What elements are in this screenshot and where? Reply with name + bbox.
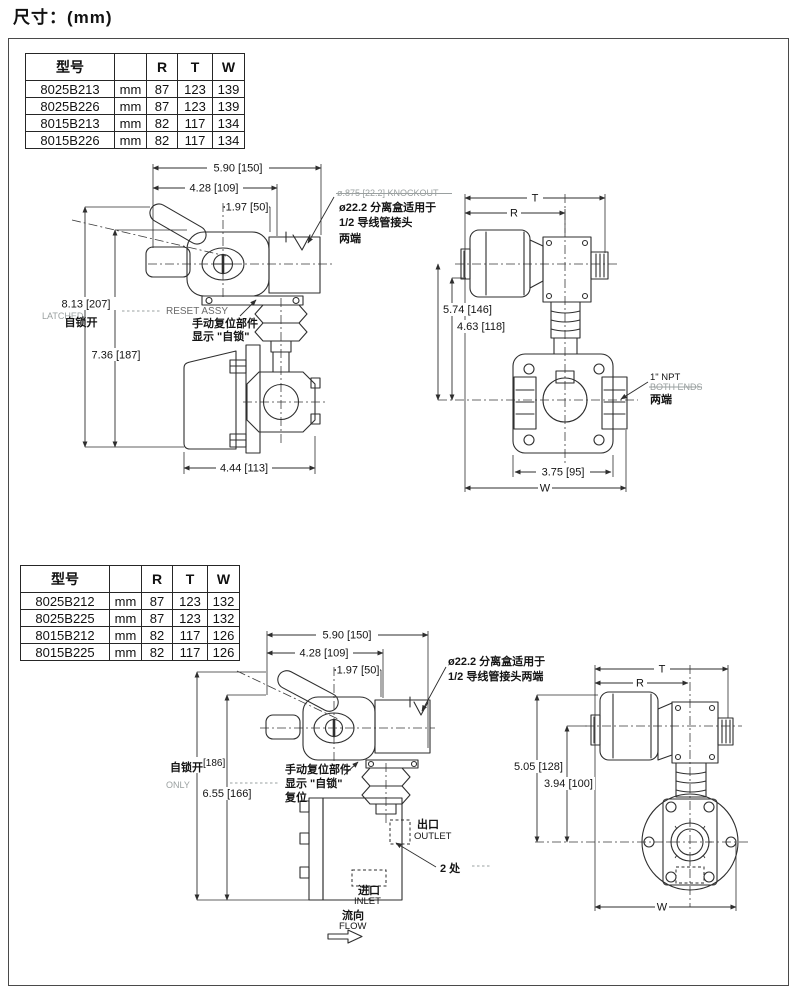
- bolt: [300, 833, 309, 844]
- end-cap: [591, 715, 600, 745]
- conduit-box: [375, 700, 430, 753]
- r-value: 82: [147, 132, 178, 149]
- dim-width-body: 4.28 [109]: [190, 183, 239, 195]
- r-value: 82: [147, 115, 178, 132]
- model-cell: 8025B213: [26, 81, 115, 98]
- latched-cn-label: 自锁开: [65, 315, 98, 329]
- dim-height-latched: [186]: [203, 758, 225, 769]
- dim-t: T: [532, 193, 539, 205]
- inlet-port: [352, 870, 386, 886]
- w-value: 139: [213, 81, 245, 98]
- bolt: [300, 867, 309, 878]
- table-row: 8025B226 mm 87 123 139: [26, 98, 245, 115]
- valve-side-outline: [438, 194, 638, 473]
- r-value: 87: [142, 593, 173, 610]
- r-header: R: [147, 54, 178, 81]
- model-cell: 8025B212: [21, 593, 110, 610]
- reset-cn-label-3: 复位: [284, 790, 307, 804]
- manual-handle: [275, 668, 342, 715]
- body-plate: [309, 798, 323, 900]
- model-header: 型号: [26, 54, 115, 81]
- unit-header: [115, 54, 147, 81]
- outlet-cn-label: 出口: [417, 817, 439, 831]
- dim-r: R: [636, 678, 644, 690]
- latched-cn-label: 自锁开: [170, 760, 203, 774]
- dim-height: 6.55 [166]: [203, 788, 252, 800]
- unit-cell: mm: [110, 593, 142, 610]
- w-value: 139: [213, 98, 245, 115]
- places-label: 2 处: [440, 861, 461, 875]
- knockout-cn-label-1: ø22.2 分离盒适用于: [448, 654, 545, 668]
- unit-cell: mm: [115, 132, 147, 149]
- labels: 5.90 [150] 4.28 [109] 1.97 [50] ø22.2 分离…: [166, 629, 545, 932]
- unit-cell: mm: [115, 115, 147, 132]
- page-title: 尺寸：(mm): [13, 3, 113, 28]
- extension-lines: [452, 194, 626, 492]
- t-header: T: [173, 566, 208, 593]
- labels: 5.90 [150] 4.28 [109] 1.97 [50] 8.13 [20…: [42, 162, 439, 475]
- body-plate: [246, 345, 260, 453]
- unit-cell: mm: [115, 98, 147, 115]
- npt-both-ends-label: BOTH ENDS: [650, 382, 703, 392]
- w-value: 134: [213, 115, 245, 132]
- dim-height-1: 5.05 [128]: [514, 761, 563, 773]
- manual-handle: [147, 201, 210, 248]
- dim-height-1: 5.74 [146]: [443, 304, 492, 316]
- solenoid-coil: [470, 230, 530, 297]
- spec-table-top: 型号 R T W 8025B213 mm 87 123 139 8025B226…: [25, 53, 245, 149]
- labels: T R 5.05 [128] 3.94 [100] W: [512, 663, 670, 914]
- w-header: W: [208, 566, 240, 593]
- reset-assy-en-label: RESET ASSY: [166, 306, 228, 317]
- r-value: 87: [147, 81, 178, 98]
- top-drawing: 5.90 [150] 4.28 [109] 1.97 [50] 8.13 [20…: [40, 148, 760, 538]
- enclosure-box: [184, 351, 236, 449]
- reset-cn-label-1: 手动复位部件: [285, 762, 351, 776]
- inlet-cn-label: 进口: [358, 883, 380, 897]
- bottom-right-view: T R 5.05 [128] 3.94 [100] W: [512, 663, 748, 914]
- table-row: 8015B213 mm 82 117 134: [26, 115, 245, 132]
- knockout-en-label: ø.875 [22.2] KNOCKOUT: [337, 188, 439, 198]
- mounting-flange: [513, 354, 613, 453]
- flow-en-label: FLOW: [339, 921, 366, 932]
- unit-header: [110, 566, 142, 593]
- dim-width-center: 1.97 [50]: [226, 202, 269, 214]
- model-cell: 8025B225: [21, 610, 110, 627]
- dim-height-latched: 8.13 [207]: [62, 299, 111, 311]
- model-cell: 8015B213: [26, 115, 115, 132]
- top-left-view: 5.90 [150] 4.28 [109] 1.97 [50] 8.13 [20…: [42, 162, 452, 475]
- table-row: 8025B213 mm 87 123 139: [26, 81, 245, 98]
- unit-cell: mm: [115, 81, 147, 98]
- top-right-view: T R 5.74 [146] 4.63 [118] 1" NPT BOTH EN…: [438, 192, 703, 495]
- model-cell: 8025B226: [26, 98, 115, 115]
- knockout-cn-label-2: 1/2 导线管接头: [339, 215, 412, 229]
- model-cell: 8015B226: [26, 132, 115, 149]
- dim-width-body: 4.28 [109]: [300, 648, 349, 660]
- knockout-cn-label-1: ø22.2 分离盒适用于: [339, 200, 436, 214]
- t-header: T: [178, 54, 213, 81]
- bottom-left-view: 5.90 [150] 4.28 [109] 1.97 [50] ø22.2 分离…: [166, 629, 545, 943]
- table-row: 8015B226 mm 82 117 134: [26, 132, 245, 149]
- junction-box: [543, 237, 591, 302]
- w-value: 134: [213, 132, 245, 149]
- dim-t: T: [659, 664, 666, 676]
- dim-width-overall: 5.90 [150]: [323, 630, 372, 642]
- bonnet-stem: [551, 302, 580, 338]
- dim-height-2: 3.94 [100]: [544, 778, 593, 790]
- dim-base-width: 4.44 [113]: [220, 463, 268, 475]
- bottom-drawing: 5.90 [150] 4.28 [109] 1.97 [50] ø22.2 分离…: [130, 615, 790, 960]
- junction-box: [672, 702, 718, 763]
- knockout-cn-label-2: 1/2 导线管接头两端: [448, 669, 543, 683]
- w-value: 132: [208, 593, 240, 610]
- t-value: 117: [178, 115, 213, 132]
- outlet-en-label: OUTLET: [414, 831, 452, 842]
- dim-width-center: 1.97 [50]: [337, 665, 380, 677]
- datasheet-page: 尺寸：(mm) 型号 R T W 8025B213 mm 87 123 139 …: [0, 0, 800, 995]
- conduit-box: [269, 237, 320, 293]
- reset-cn-label: 手动复位部件: [192, 316, 258, 330]
- t-value: 117: [178, 132, 213, 149]
- only-en-label: ONLY: [166, 780, 190, 790]
- t-value: 123: [173, 593, 208, 610]
- side-cylinder: [266, 715, 300, 739]
- reset-cn-label-2: 显示 "自锁": [192, 329, 250, 343]
- inlet-en-label: INLET: [354, 896, 381, 907]
- model-cell: 8015B212: [21, 627, 110, 644]
- table-row: 8025B212 mm 87 123 132: [21, 593, 240, 610]
- model-header: 型号: [21, 566, 110, 593]
- reset-cn-label-2: 显示 "自锁": [285, 776, 343, 790]
- side-cylinder: [146, 247, 190, 277]
- r-header: R: [142, 566, 173, 593]
- dim-height: 7.36 [187]: [92, 350, 141, 362]
- outlet-port: [390, 820, 410, 844]
- model-cell: 8015B225: [21, 644, 110, 661]
- t-value: 123: [178, 81, 213, 98]
- knockout-cn-label-3: 两端: [339, 231, 361, 245]
- dim-r: R: [510, 208, 518, 220]
- flow-cn-label: 流向: [342, 908, 364, 922]
- pipe-port: [514, 377, 536, 429]
- dim-w: W: [657, 902, 668, 914]
- dim-flange-width: 3.75 [95]: [542, 467, 585, 479]
- table-header-row: 型号 R T W: [26, 54, 245, 81]
- npt-cn-label: 两端: [650, 392, 672, 406]
- table-header-row: 型号 R T W: [21, 566, 240, 593]
- r-value: 87: [147, 98, 178, 115]
- dim-w: W: [540, 483, 551, 495]
- dim-height-2: 4.63 [118]: [457, 321, 505, 333]
- t-value: 123: [178, 98, 213, 115]
- dim-width-overall: 5.90 [150]: [214, 163, 263, 175]
- w-header: W: [213, 54, 245, 81]
- pipe-port: [602, 377, 627, 429]
